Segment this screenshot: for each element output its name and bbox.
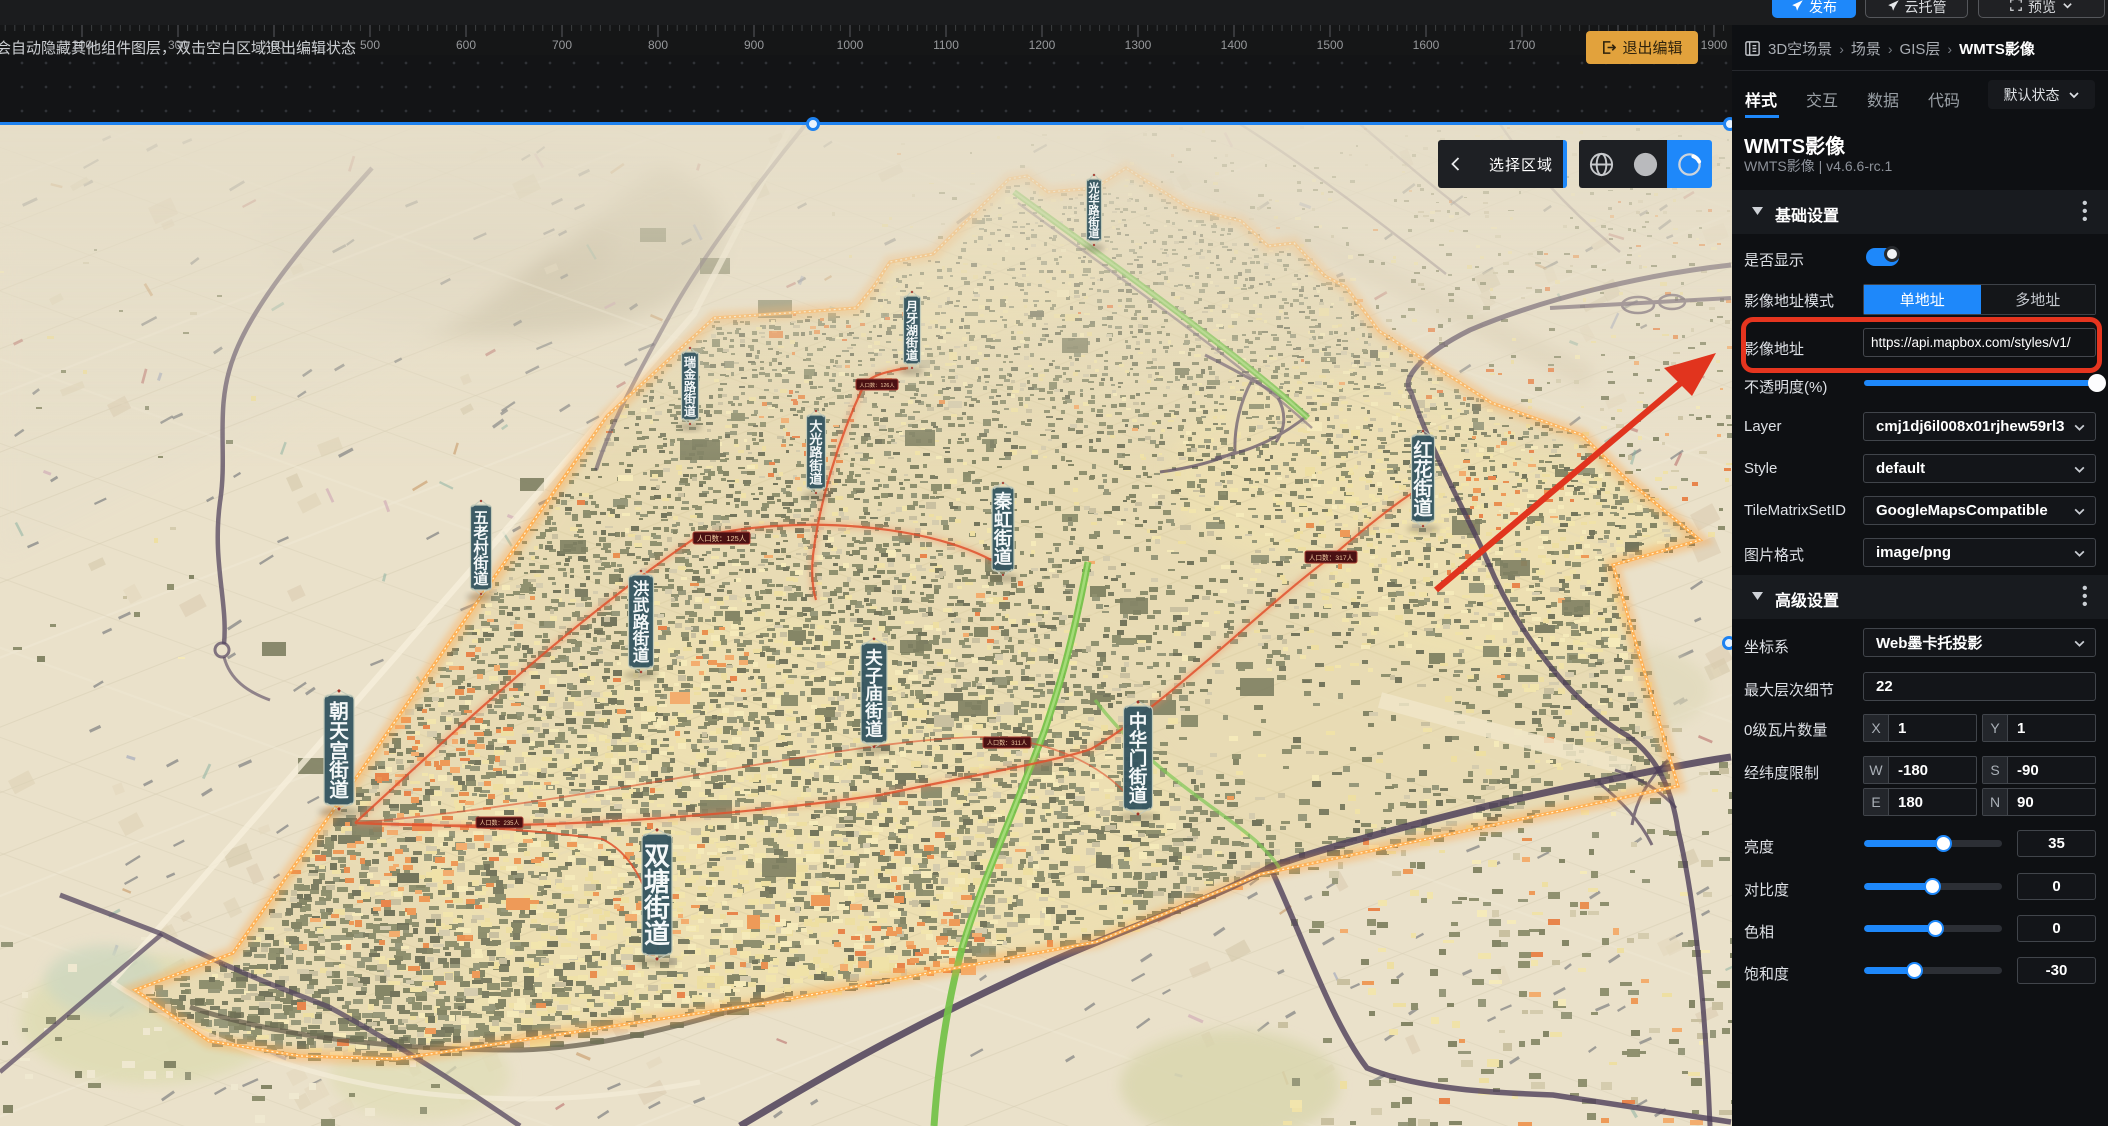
svg-text:光华路街道: 光华路街道 [1087,181,1100,240]
svg-text:人口数：125人: 人口数：125人 [697,534,747,543]
svg-text:1300: 1300 [1125,38,1152,52]
svg-text:中华门街道: 中华门街道 [1128,711,1148,806]
svg-text:瑞金路街道: 瑞金路街道 [683,355,697,419]
svg-text:1900: 1900 [1701,38,1728,52]
svg-text:秦虹街道: 秦虹街道 [993,491,1013,568]
svg-text:双塘街道: 双塘街道 [643,841,670,949]
svg-text:800: 800 [648,38,668,52]
svg-text:900: 900 [744,38,764,52]
svg-text:1200: 1200 [1029,38,1056,52]
svg-text:人口数：235人: 人口数：235人 [479,819,519,827]
svg-text:1600: 1600 [1413,38,1440,52]
svg-text:人口数：311人: 人口数：311人 [987,739,1027,747]
svg-text:夫子庙街道: 夫子庙街道 [864,647,883,739]
svg-text:人口数：126人: 人口数：126人 [859,381,895,389]
svg-text:朝天宫街道: 朝天宫街道 [328,701,349,801]
svg-text:1100: 1100 [933,38,959,52]
svg-text:1400: 1400 [1221,38,1248,52]
svg-text:月牙湖街道: 月牙湖街道 [905,300,919,363]
svg-text:1700: 1700 [1509,38,1536,52]
svg-text:人口数：317人: 人口数：317人 [1309,553,1354,562]
svg-text:洪武路街道: 洪武路街道 [632,579,650,665]
svg-text:1000: 1000 [837,38,864,52]
svg-text:五老村街道: 五老村街道 [472,510,489,588]
svg-text:1500: 1500 [1317,38,1344,52]
svg-text:大光路街道: 大光路街道 [808,418,823,487]
